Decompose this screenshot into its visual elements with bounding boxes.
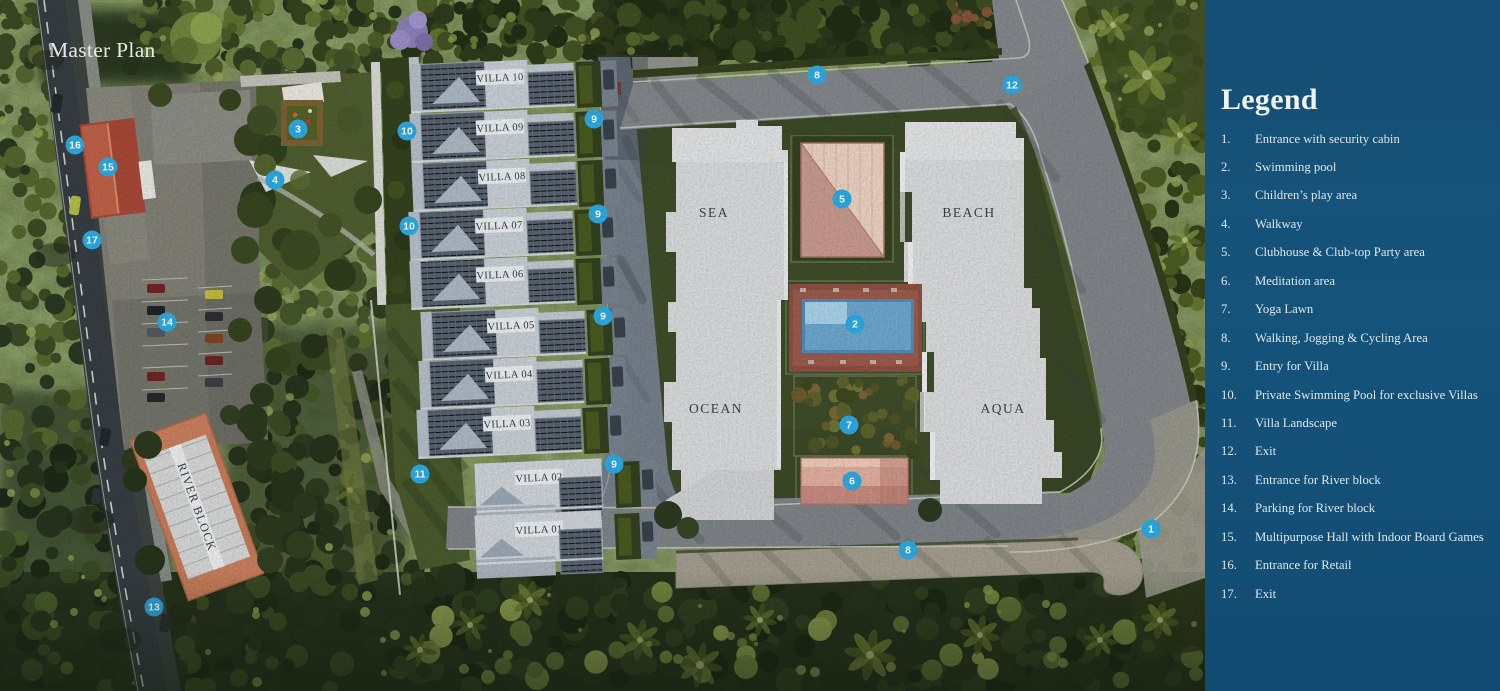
svg-text:Master Plan: Master Plan (49, 38, 156, 62)
